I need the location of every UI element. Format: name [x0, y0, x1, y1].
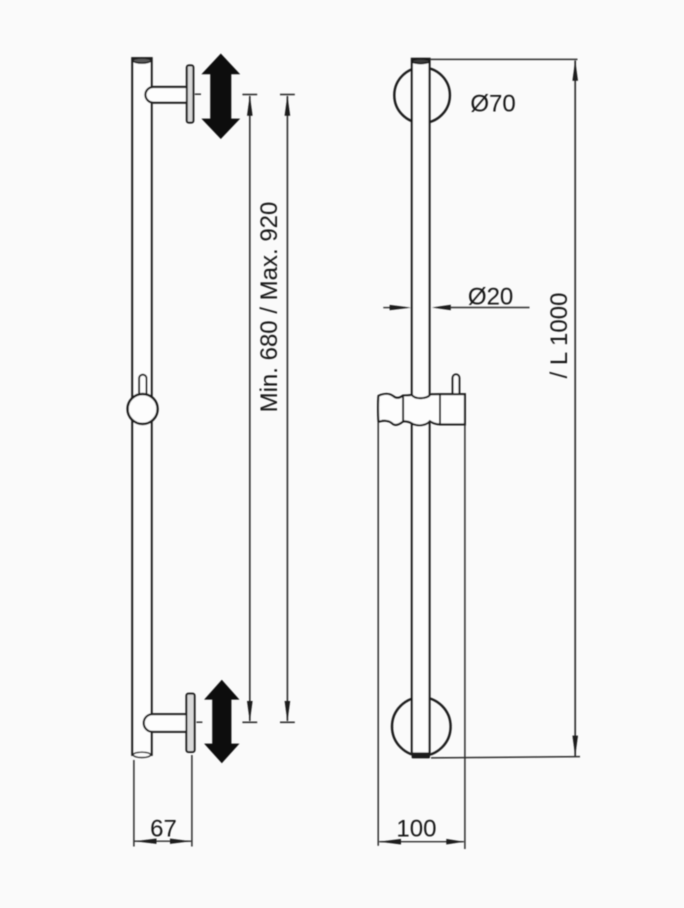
svg-text:100: 100 [396, 816, 436, 843]
svg-text:67: 67 [150, 815, 177, 842]
svg-text:/ L 1000: / L 1000 [546, 293, 573, 379]
svg-text:Ø20: Ø20 [468, 284, 513, 311]
svg-text:Ø70: Ø70 [470, 90, 515, 117]
svg-text:Min. 680 / Max. 920: Min. 680 / Max. 920 [256, 202, 283, 413]
